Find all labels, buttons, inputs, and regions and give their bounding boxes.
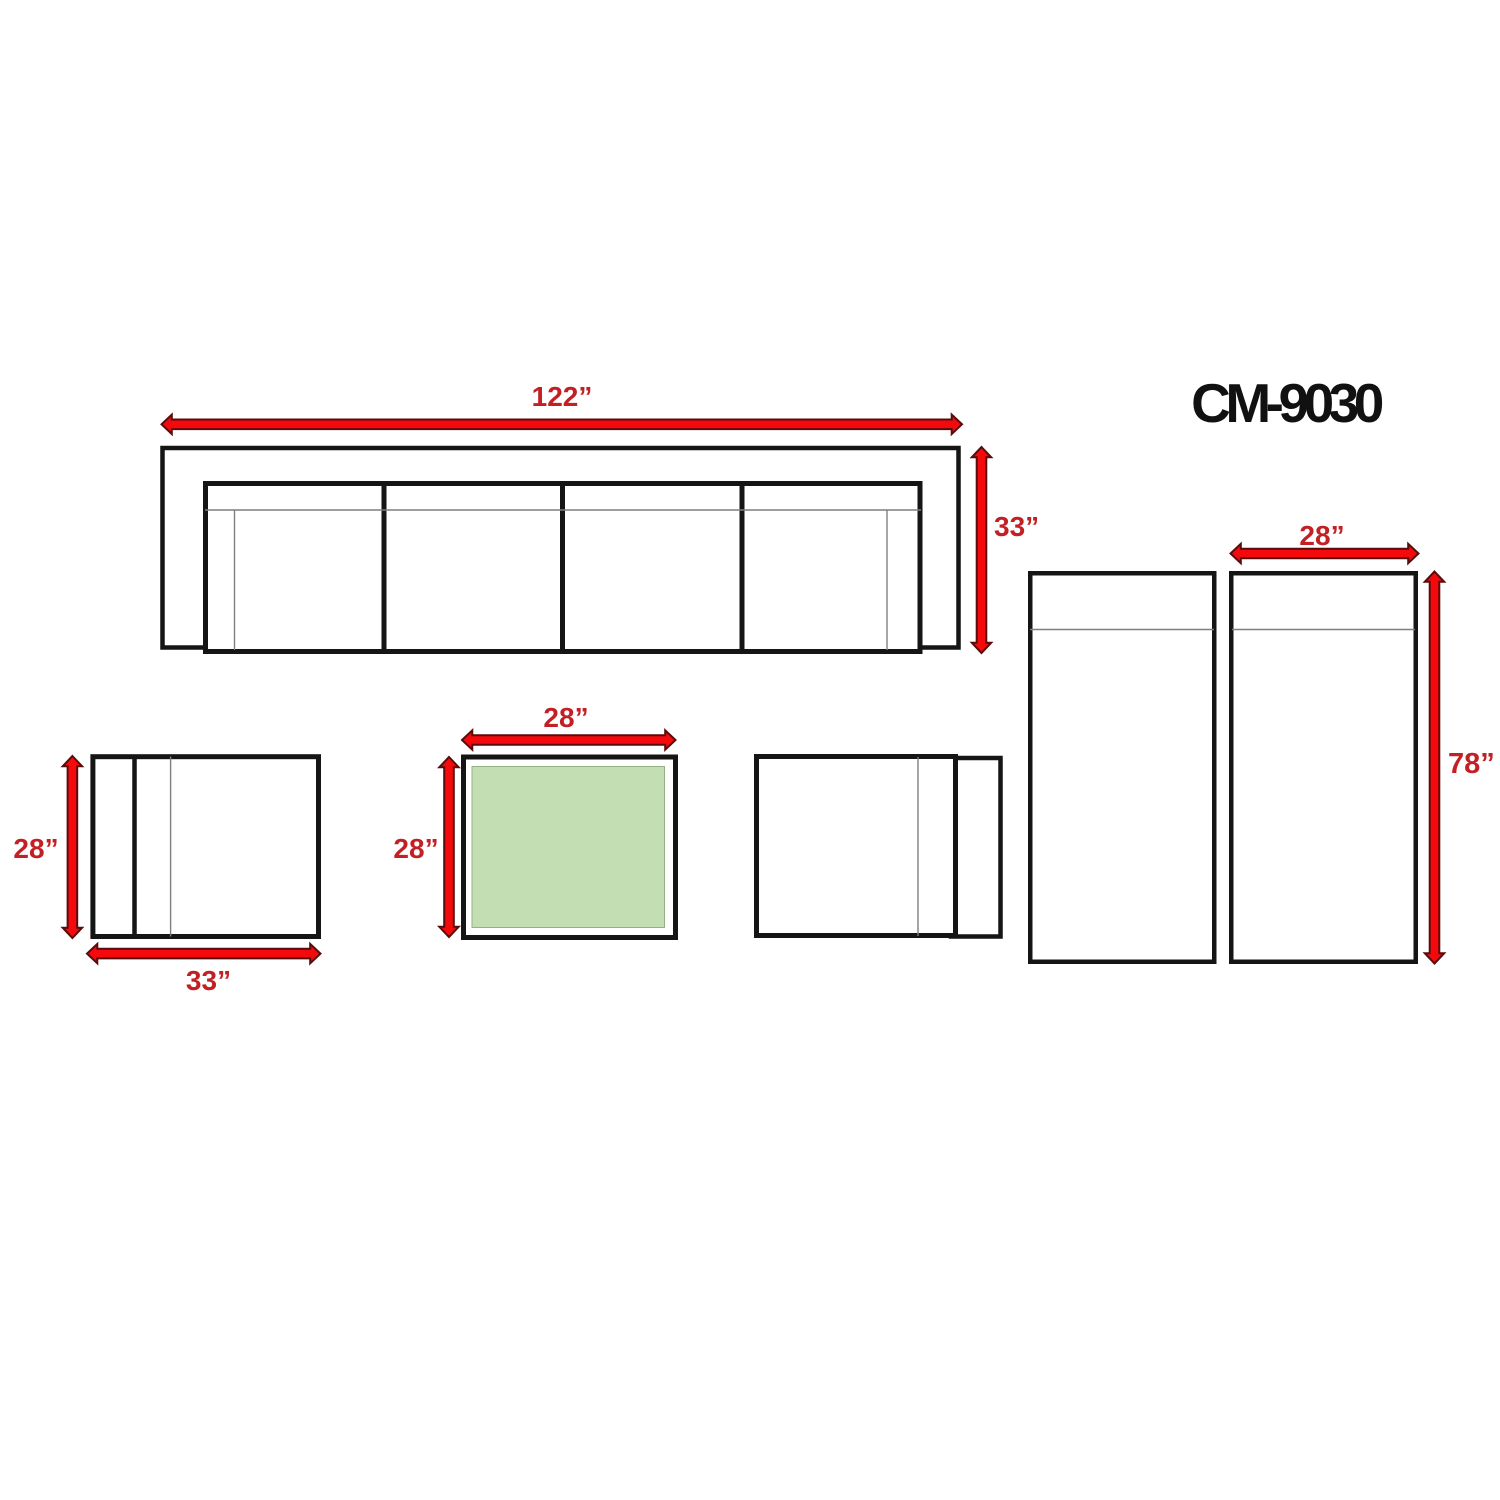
svg-text:78”: 78” — [1448, 748, 1495, 780]
svg-text:33”: 33” — [994, 511, 1039, 542]
svg-text:28”: 28” — [543, 702, 588, 733]
svg-text:28”: 28” — [393, 833, 438, 864]
svg-text:33”: 33” — [186, 965, 231, 996]
svg-text:28”: 28” — [1299, 520, 1344, 551]
svg-text:28”: 28” — [13, 833, 58, 864]
svg-text:CM-9030: CM-9030 — [1191, 372, 1383, 434]
svg-text:122”: 122” — [532, 381, 593, 412]
